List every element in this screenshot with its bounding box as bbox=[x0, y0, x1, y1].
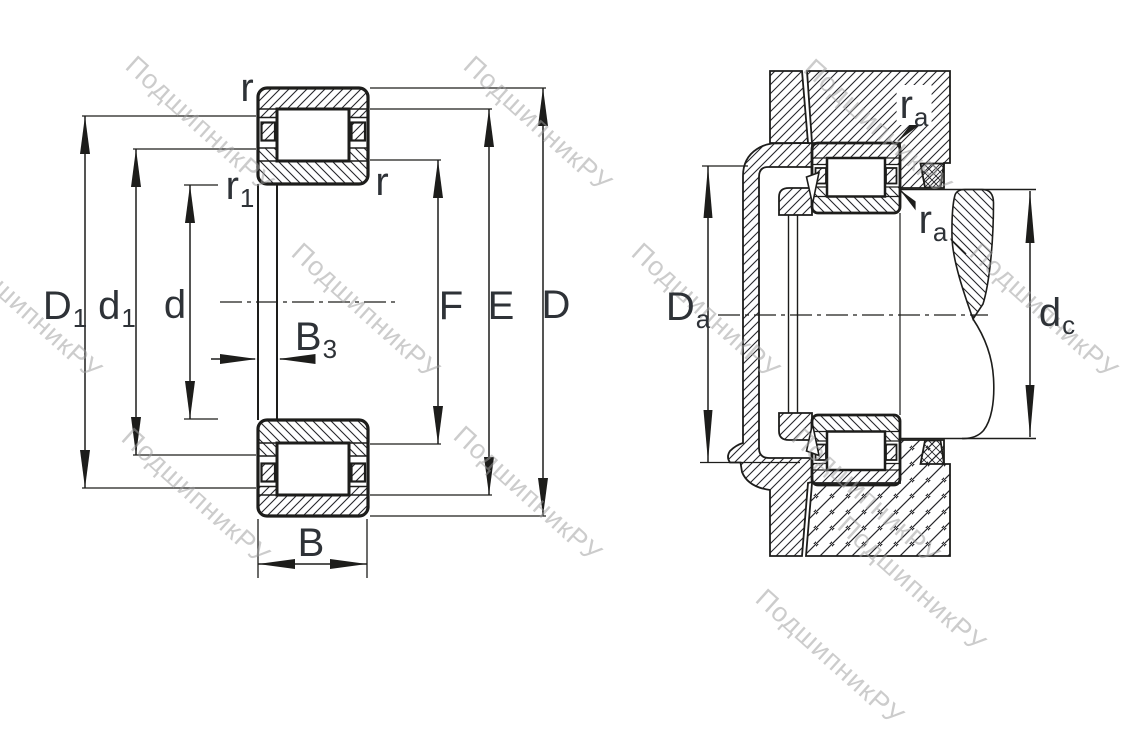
cage-section bbox=[262, 464, 276, 482]
label-ra-housing: ra bbox=[897, 85, 932, 125]
cage-section bbox=[352, 464, 366, 482]
cage-section bbox=[886, 445, 897, 461]
label-dc: dc bbox=[1039, 293, 1075, 333]
label-d: d bbox=[164, 285, 186, 325]
roller-section bbox=[277, 109, 349, 161]
cage-section bbox=[886, 168, 897, 184]
locating-ring-section bbox=[921, 441, 945, 465]
label-Da: Da bbox=[666, 287, 710, 327]
label-r1: r1 bbox=[226, 166, 255, 206]
inner-ring-band bbox=[258, 161, 368, 184]
label-B: B bbox=[298, 523, 325, 563]
roller-section bbox=[827, 432, 885, 471]
shaft-relief-section bbox=[952, 190, 994, 320]
roller-section bbox=[277, 443, 349, 495]
abutment-sleeve-section bbox=[779, 188, 812, 215]
cage-section bbox=[262, 123, 276, 141]
cage-section bbox=[352, 123, 366, 141]
label-D: D bbox=[542, 285, 571, 325]
label-r-top: r bbox=[240, 68, 253, 108]
technical-drawing-canvas: ПодшипникРУ ПодшипникРУ ПодшипникРУ Подш… bbox=[0, 0, 1129, 632]
shaft-step-lines bbox=[789, 215, 798, 413]
abutment-sleeve-section bbox=[779, 413, 812, 440]
right-mounting-figure bbox=[700, 71, 1036, 556]
label-d1: d1 bbox=[98, 286, 136, 326]
label-E: E bbox=[488, 286, 515, 326]
label-ra-shaft: ra bbox=[916, 200, 951, 240]
label-D1: D1 bbox=[43, 286, 87, 326]
locating-ring-section bbox=[921, 164, 945, 188]
label-r-inner: r bbox=[375, 162, 388, 202]
shaft-end-contour bbox=[962, 319, 994, 439]
label-F: F bbox=[439, 286, 463, 326]
end-cover-flange bbox=[770, 71, 808, 143]
label-B3: B3 bbox=[295, 317, 337, 357]
roller-section bbox=[827, 158, 885, 197]
outer-ring-band bbox=[258, 88, 368, 109]
